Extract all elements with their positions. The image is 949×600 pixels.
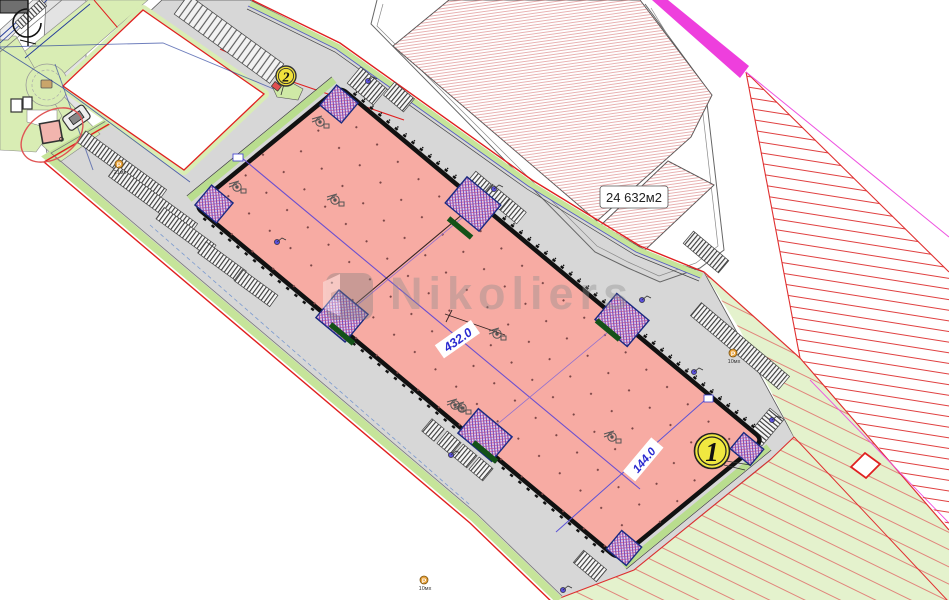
svg-text:Nikoliers: Nikoliers <box>390 268 634 319</box>
svg-text:2: 2 <box>282 71 290 86</box>
svg-text:P: P <box>422 578 427 585</box>
svg-text:P: P <box>731 351 736 358</box>
svg-text:10мх: 10мх <box>419 586 432 592</box>
svg-text:10мх: 10мх <box>728 359 741 365</box>
svg-text:21мх: 21мх <box>114 170 127 176</box>
svg-text:24 632м2: 24 632м2 <box>606 190 662 205</box>
svg-text:1: 1 <box>705 437 719 467</box>
svg-text:P: P <box>117 162 122 169</box>
